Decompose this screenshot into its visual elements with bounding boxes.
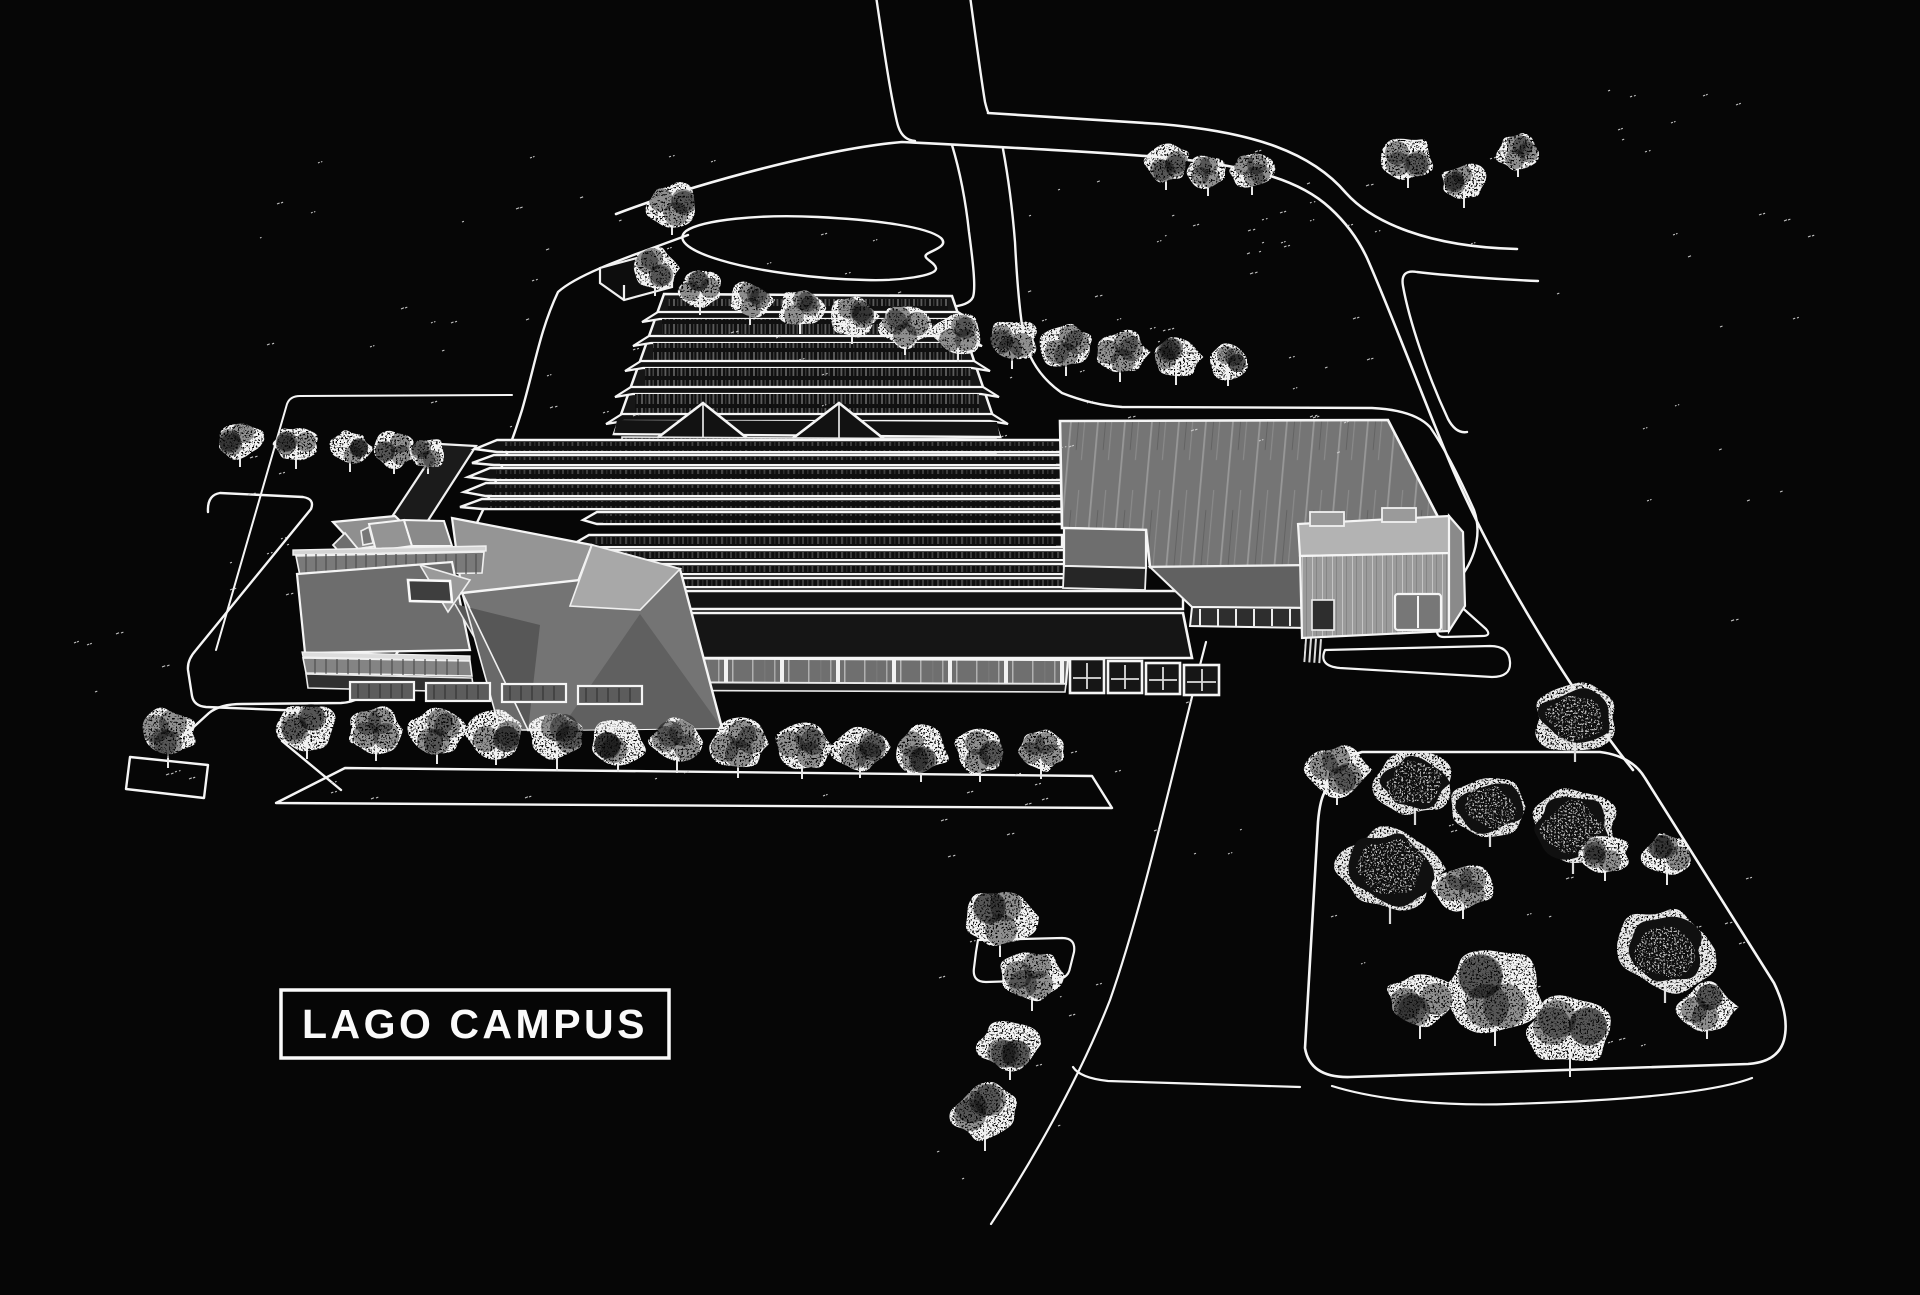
svg-text:LAGO CAMPUS: LAGO CAMPUS: [302, 1001, 648, 1047]
